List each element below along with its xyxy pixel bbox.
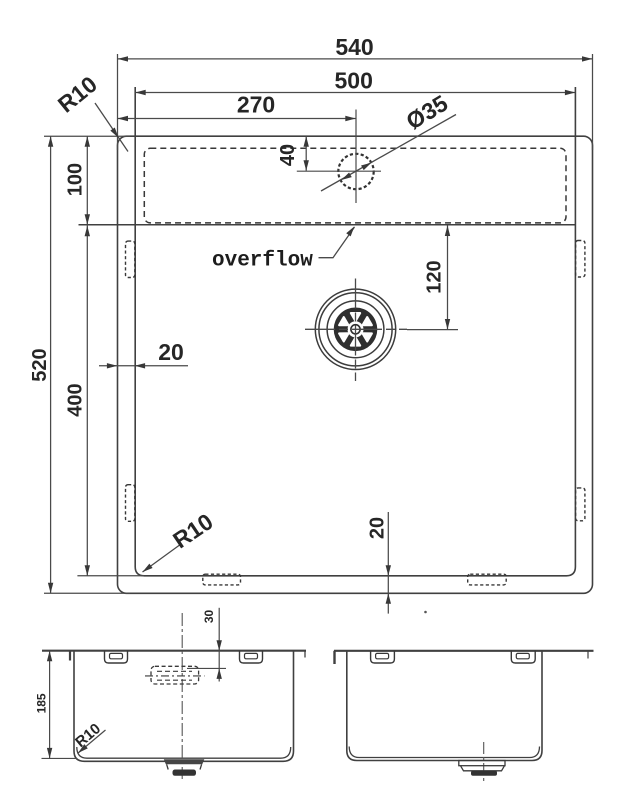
svg-text:120: 120	[424, 260, 446, 293]
svg-text:R10: R10	[72, 720, 104, 751]
svg-text:520: 520	[29, 348, 51, 381]
svg-text:270: 270	[237, 92, 275, 118]
svg-text:100: 100	[65, 163, 87, 196]
svg-text:185: 185	[35, 693, 49, 713]
svg-text:40: 40	[277, 144, 299, 166]
svg-text:540: 540	[335, 34, 373, 60]
svg-text:400: 400	[65, 383, 87, 416]
svg-text:R10: R10	[168, 508, 218, 553]
svg-text:20: 20	[367, 517, 389, 539]
svg-text:500: 500	[335, 68, 373, 94]
svg-text:20: 20	[158, 339, 184, 365]
svg-text:R10: R10	[53, 71, 102, 118]
svg-text:30: 30	[202, 610, 216, 624]
svg-text:overflow: overflow	[212, 250, 313, 273]
svg-text:Ø35: Ø35	[402, 90, 453, 135]
